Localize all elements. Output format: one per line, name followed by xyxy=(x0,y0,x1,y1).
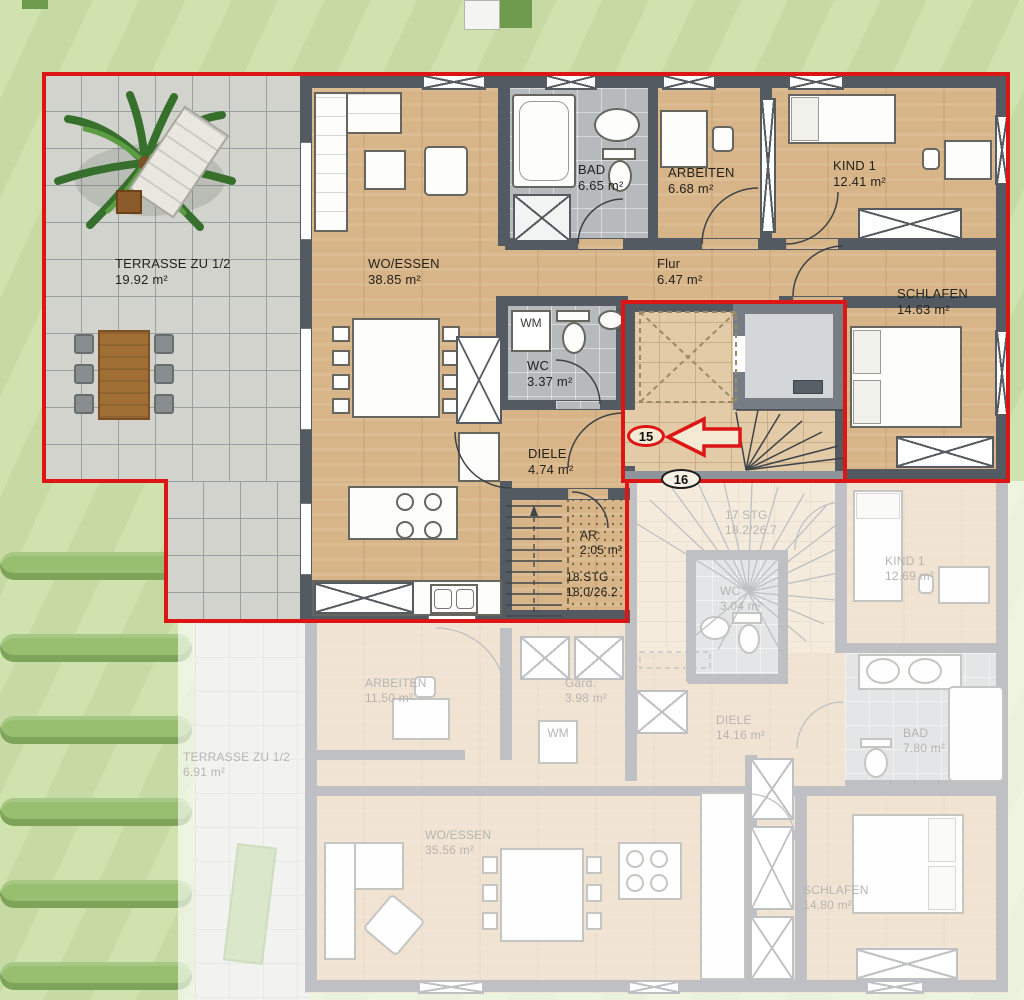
sink-bowl xyxy=(434,589,452,609)
toilet xyxy=(562,322,586,354)
dining-table xyxy=(352,318,440,418)
terrace-chair xyxy=(74,364,94,384)
pillow xyxy=(791,97,819,141)
shaft xyxy=(760,98,776,233)
sliding-door xyxy=(301,142,311,240)
kitchen-cabinet xyxy=(314,582,414,614)
sliding-door xyxy=(301,503,311,575)
room-label-woessen: WO/ESSEN38.85 m² xyxy=(368,256,440,289)
door-gap xyxy=(702,239,758,249)
wall xyxy=(648,88,658,246)
door-gap xyxy=(786,239,838,249)
stair-label: 18 STG18.0/26.2 xyxy=(566,570,618,600)
floor-terrace xyxy=(166,481,305,621)
stove-burner xyxy=(396,493,414,511)
pillow xyxy=(853,330,881,374)
window xyxy=(422,74,486,90)
chair xyxy=(332,326,350,342)
wall xyxy=(623,302,635,410)
room-label-wc: WC3.37 m² xyxy=(527,358,572,391)
wardrobe xyxy=(858,208,962,240)
wm-label: WM xyxy=(520,316,541,330)
terrace-chair xyxy=(154,364,174,384)
room-label-bad: BAD6.65 m² xyxy=(578,162,623,195)
chair xyxy=(332,374,350,390)
stove-burner xyxy=(396,521,414,539)
terrace-chair xyxy=(74,334,94,354)
pillow xyxy=(853,380,881,424)
sofa xyxy=(314,92,348,232)
stove-burner xyxy=(424,521,442,539)
unit-badge-15[interactable]: 15 xyxy=(627,425,665,447)
wall xyxy=(498,86,510,246)
floor-plan-canvas: WM xyxy=(0,0,1024,1000)
unit-badge-16[interactable]: 16 xyxy=(661,469,701,489)
wall xyxy=(623,471,845,481)
elevator xyxy=(733,302,845,410)
elevator-counterweight xyxy=(793,380,823,394)
desk xyxy=(944,140,992,180)
elevator-door xyxy=(733,336,745,372)
wardrobe xyxy=(896,436,994,468)
terrace-table xyxy=(98,330,150,420)
armchair xyxy=(424,146,468,196)
window xyxy=(995,330,1009,416)
terrace-chair xyxy=(154,334,174,354)
washing-machine: WM xyxy=(511,310,551,352)
cabinet xyxy=(456,336,502,424)
door-gap xyxy=(578,239,623,249)
room-label-flur: Flur6.47 m² xyxy=(657,256,702,289)
chair xyxy=(332,350,350,366)
window xyxy=(545,74,597,90)
window xyxy=(995,115,1009,185)
wall xyxy=(500,488,630,500)
window xyxy=(788,74,844,90)
sink-bowl xyxy=(456,589,474,609)
upper-floor-plan: WM xyxy=(0,0,1024,1000)
room-label-schlafen: SCHLAFEN14.63 m² xyxy=(897,286,968,319)
wall xyxy=(623,302,733,312)
stove-burner xyxy=(424,493,442,511)
chair xyxy=(922,148,940,170)
chair xyxy=(332,398,350,414)
wall xyxy=(300,76,1008,88)
room-label-terrasse: TERRASSE ZU 1/219.92 m² xyxy=(115,256,231,289)
toilet-tank xyxy=(602,148,636,160)
terrace-chair xyxy=(154,394,174,414)
toilet-tank xyxy=(556,310,590,322)
room-label-arbeiten: ARBEITEN6.68 m² xyxy=(668,165,735,198)
counter xyxy=(458,432,500,482)
door-gap xyxy=(568,489,608,499)
room-label-diele: DIELE4.74 m² xyxy=(528,446,573,479)
shower xyxy=(513,194,571,242)
coffee-table xyxy=(364,150,406,190)
room-label-ar: AR:2.05 m² xyxy=(580,528,622,558)
sink xyxy=(594,108,640,142)
bathtub-inner xyxy=(519,101,569,181)
sink xyxy=(598,310,624,330)
window xyxy=(662,74,716,90)
desk xyxy=(660,110,708,168)
chair xyxy=(712,126,734,152)
door-gap xyxy=(556,401,600,409)
terrace-chair xyxy=(74,394,94,414)
room-label-kind1: KIND 112.41 m² xyxy=(833,158,886,191)
sliding-door xyxy=(301,328,311,430)
wall xyxy=(845,469,1008,481)
planter xyxy=(116,190,142,214)
wall xyxy=(503,296,625,306)
